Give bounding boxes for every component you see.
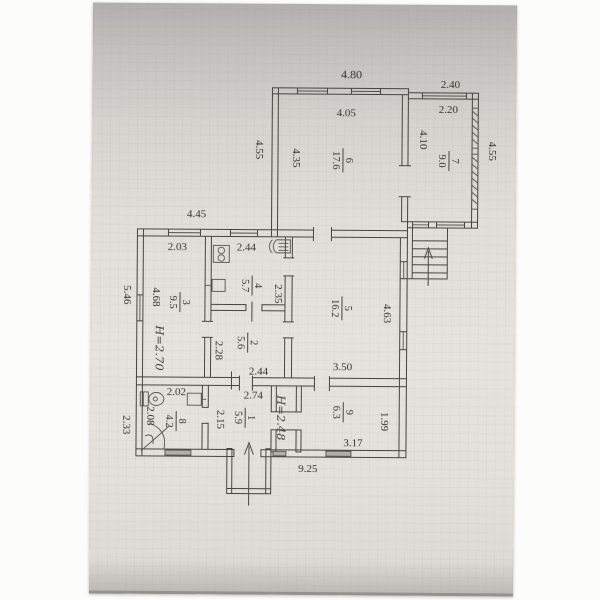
svg-text:1: 1 xyxy=(245,415,256,420)
ventilation-hatch xyxy=(326,451,351,456)
svg-text:16.2: 16.2 xyxy=(329,299,340,317)
floor-plan-drawing: 4.80 2.40 2.20 4.05 4.45 2.03 2.44 2.44 … xyxy=(89,3,517,597)
scanned-photo: 4.80 2.40 2.20 4.05 4.45 2.03 2.44 2.44 … xyxy=(0,0,600,600)
dim-room9-width: 3.17 xyxy=(343,437,363,449)
dim-room1-height: 2.15 xyxy=(214,410,226,430)
svg-text:4: 4 xyxy=(252,283,263,289)
room-7-label: 7 9.0 xyxy=(436,151,460,171)
svg-text:9: 9 xyxy=(343,410,354,415)
dim-room5-height: 4.63 xyxy=(381,304,393,324)
stairs-icon xyxy=(407,228,447,279)
dim-room2-height: 2.28 xyxy=(213,341,225,361)
dim-left-upper: 4.55 xyxy=(253,140,265,160)
svg-text:9.0: 9.0 xyxy=(436,154,447,167)
svg-text:8: 8 xyxy=(176,418,187,423)
dim-annex-top: 2.40 xyxy=(441,79,461,91)
dim-room6-width: 4.05 xyxy=(337,107,357,119)
washbasin-icon xyxy=(187,393,206,405)
dim-mid-left-top: 4.45 xyxy=(187,208,207,220)
room-2-label: 2 5.6 xyxy=(235,333,259,353)
room-1-height-note: H=2.48 xyxy=(274,394,288,440)
toilet-icon xyxy=(140,392,164,406)
dim-annex-right: 4.55 xyxy=(486,142,498,162)
dim-room8-height: 2.08 xyxy=(144,406,156,426)
room-6-label: 6 17.6 xyxy=(330,148,354,172)
dim-left-bottom: 2.33 xyxy=(120,415,132,435)
dim-room3-width: 2.03 xyxy=(168,241,188,253)
dim-bottom-total: 9.25 xyxy=(298,463,318,475)
room-3-height-note: H=2.70 xyxy=(153,324,167,370)
room-3-label: 3 9.5 xyxy=(167,292,191,312)
svg-text:6: 6 xyxy=(343,158,354,163)
svg-text:5.9: 5.9 xyxy=(232,411,243,424)
stove-icon xyxy=(213,245,229,262)
svg-text:4.2: 4.2 xyxy=(163,414,174,427)
ventilation-hatch xyxy=(273,451,286,456)
room-9-label: 9 6.3 xyxy=(330,402,354,422)
svg-text:3: 3 xyxy=(180,300,191,305)
room-4-label: 4 5.7 xyxy=(239,276,263,296)
svg-text:9.5: 9.5 xyxy=(167,295,178,308)
dim-room4-height: 2.35 xyxy=(272,284,284,304)
dim-room8-width: 2.02 xyxy=(167,386,186,398)
svg-text:17.6: 17.6 xyxy=(330,151,341,169)
entrance-arrow-icon xyxy=(244,443,253,506)
water-heater-icon xyxy=(269,240,290,253)
svg-text:5: 5 xyxy=(342,306,353,311)
room-5-label: 5 16.2 xyxy=(329,296,353,320)
ventilation-hatch xyxy=(165,450,191,455)
kitchen-sink-icon xyxy=(205,279,225,291)
svg-text:2: 2 xyxy=(248,340,259,345)
dim-left-mid: 5.46 xyxy=(121,285,133,305)
dim-room4-width: 2.44 xyxy=(237,242,257,254)
svg-text:5.7: 5.7 xyxy=(239,279,250,292)
dim-room1-width: 2.74 xyxy=(244,390,264,402)
dim-room2-width: 2.44 xyxy=(249,366,269,378)
dim-room9-height: 1.99 xyxy=(378,412,390,432)
svg-text:5.6: 5.6 xyxy=(235,336,246,349)
svg-text:6.3: 6.3 xyxy=(330,406,341,419)
stairs-arrow-icon xyxy=(424,248,432,286)
paper-sheet: 4.80 2.40 2.20 4.05 4.45 2.03 2.44 2.44 … xyxy=(89,3,517,597)
dim-room5-width: 3.50 xyxy=(333,361,353,373)
dim-room7-width: 2.20 xyxy=(439,104,459,116)
svg-text:7: 7 xyxy=(449,158,460,163)
dim-room3-height: 4.68 xyxy=(150,287,162,307)
room-1-label: 1 5.9 xyxy=(232,408,256,428)
dim-room7-height: 4.10 xyxy=(417,130,429,150)
dim-top-main: 4.80 xyxy=(341,67,362,81)
dim-room6-height: 4.35 xyxy=(290,148,302,168)
